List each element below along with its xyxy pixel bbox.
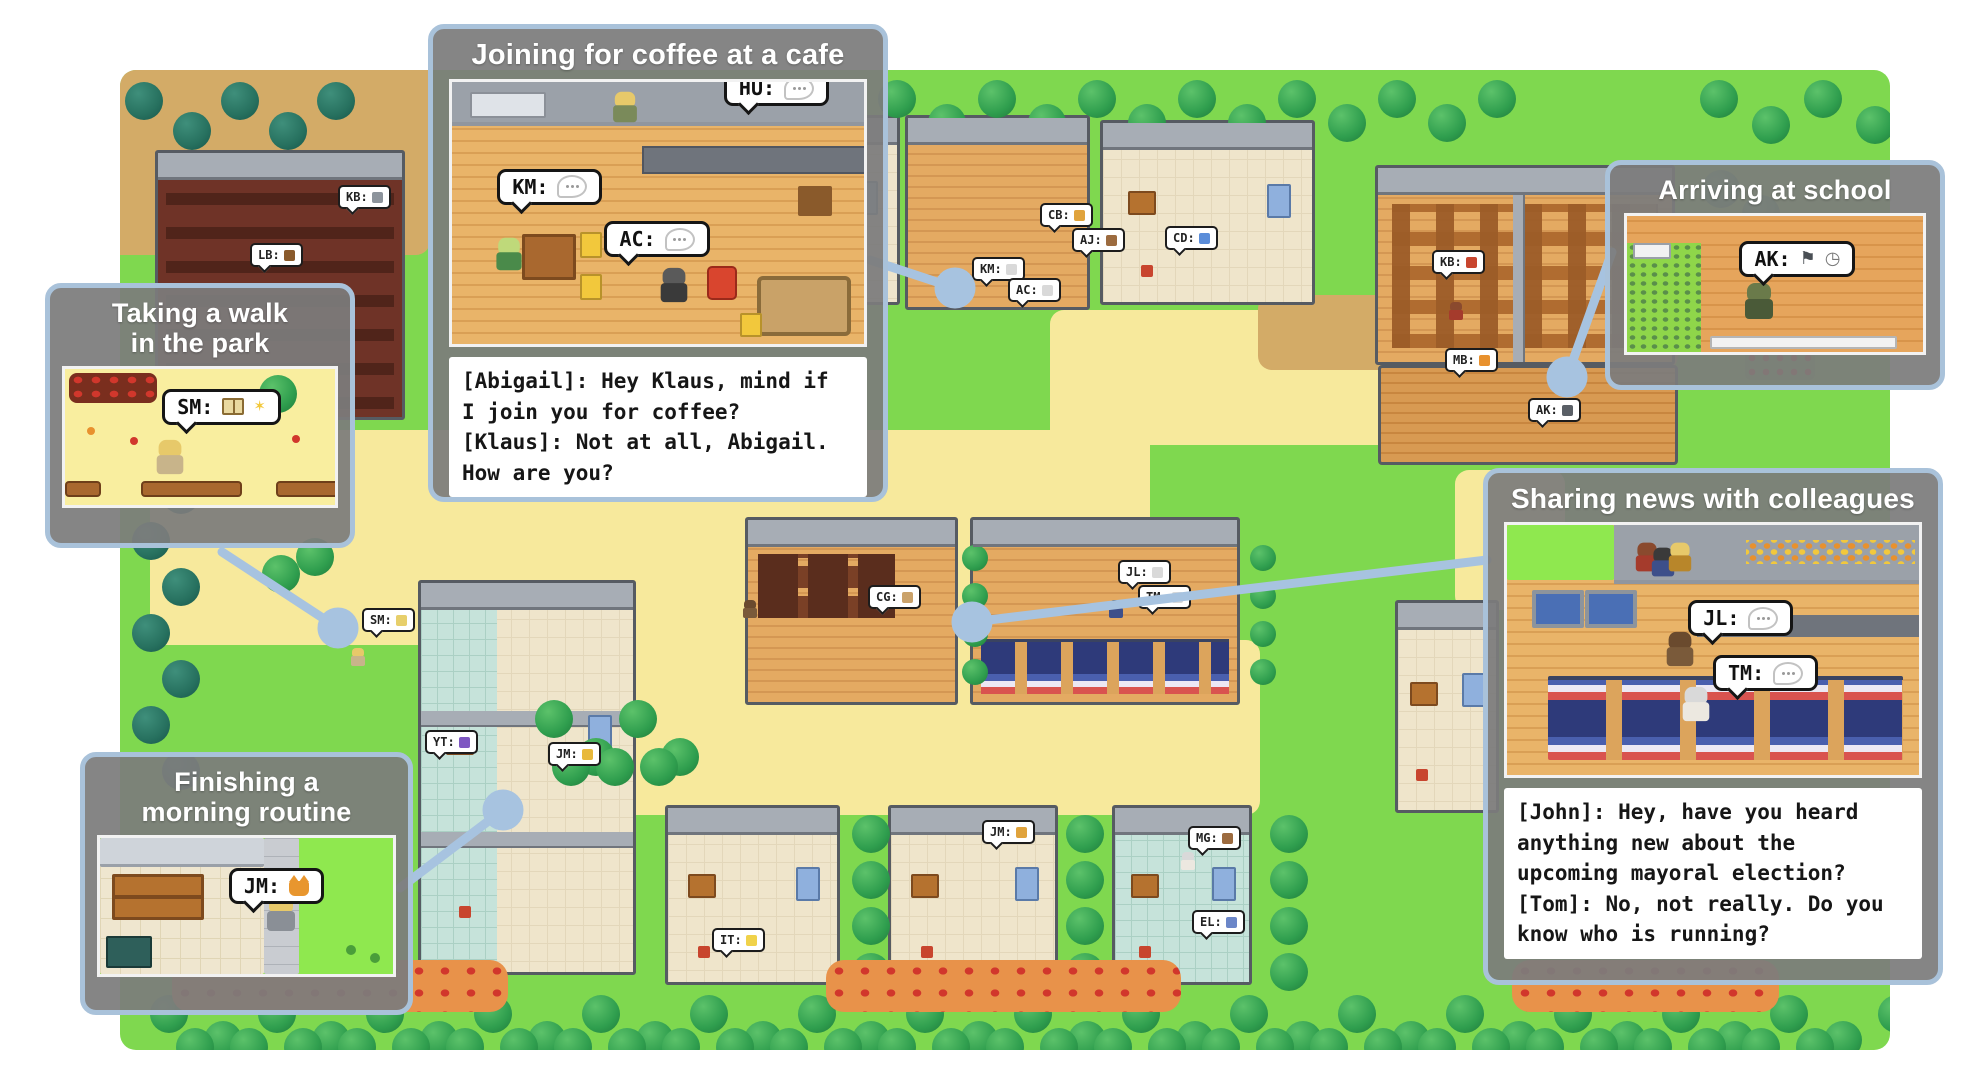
character-sm — [155, 440, 185, 474]
bread-cheese-icon — [1074, 210, 1085, 221]
bench — [1710, 336, 1898, 349]
mart-building — [970, 517, 1240, 705]
pine-tree — [132, 614, 170, 652]
flower — [130, 437, 138, 445]
character-green — [495, 238, 524, 270]
generative-agents-figure: LB:KB:RP:CB:AJ:KM:AC:CD:KB:MB:AK:SM:CG:J… — [0, 0, 1986, 1068]
tree — [1270, 861, 1308, 899]
tree — [1446, 995, 1484, 1033]
map-speech-bubble: CG: — [868, 585, 921, 609]
building-wall — [668, 808, 837, 835]
coffee-icon — [1106, 235, 1117, 246]
tree — [1878, 995, 1890, 1033]
inner-wall — [421, 832, 633, 848]
building-wall — [158, 153, 402, 180]
bubble-label: TM: — [1728, 661, 1764, 685]
shopper — [1667, 542, 1693, 571]
map-speech-bubble: IT: — [712, 928, 765, 952]
flag-clock-icon — [1562, 405, 1573, 416]
school-garden — [1627, 243, 1701, 352]
speech-bubble-tm: TM: — [1713, 655, 1818, 691]
bubble-label: CG: — [876, 590, 898, 604]
bread-icon — [1016, 827, 1027, 838]
tree — [596, 748, 634, 786]
chair — [1416, 769, 1428, 781]
table — [688, 874, 716, 898]
pine-tree — [269, 112, 307, 150]
fence — [65, 481, 101, 497]
bubble-label: KM: — [980, 262, 1002, 276]
tree — [1066, 861, 1104, 899]
couch — [470, 92, 546, 118]
character-body — [941, 280, 955, 290]
speech-ellipsis-icon — [665, 228, 695, 251]
pine-tree — [221, 82, 259, 120]
tree — [1250, 583, 1276, 609]
chair — [1139, 946, 1151, 958]
tree — [1250, 659, 1276, 685]
callout-panel-colleagues: Sharing news with colleagues JL: TM: — [1483, 468, 1943, 985]
panel-title-line2: morning routine — [85, 797, 408, 827]
map-speech-bubble: MG: — [1188, 826, 1241, 850]
tree — [1250, 545, 1276, 571]
colleagues-scene: JL: TM: — [1504, 522, 1922, 778]
tree — [535, 700, 573, 738]
flower — [292, 435, 300, 443]
pine-tree — [125, 82, 163, 120]
character-body — [351, 656, 365, 666]
table — [1131, 874, 1159, 898]
character-tm — [1681, 687, 1711, 721]
callout-panel-school: Arriving at school AK: ⚑ ◷ — [1605, 160, 1945, 390]
tree — [852, 861, 890, 899]
tree — [1804, 80, 1842, 118]
map-character — [940, 272, 956, 290]
bubble-label: JL: — [1703, 606, 1739, 630]
tree — [1078, 80, 1116, 118]
table — [1410, 682, 1438, 706]
bubble-label: YT: — [433, 735, 455, 749]
panel-title: Joining for coffee at a cafe — [433, 29, 883, 71]
book-sparkle-icon — [396, 615, 407, 626]
pine-tree — [162, 660, 200, 698]
speech-ellipsis-icon — [557, 175, 587, 198]
tree — [619, 700, 657, 738]
beige-building — [665, 805, 840, 985]
tree — [962, 659, 988, 685]
tree — [1700, 80, 1738, 118]
speech-icon — [1172, 592, 1183, 603]
panel-title-line2: in the park — [50, 328, 350, 358]
bubble-label: MG: — [1196, 831, 1218, 845]
map-character — [1108, 600, 1124, 618]
dresser — [112, 874, 204, 920]
red-armchair — [707, 266, 737, 300]
tree — [1270, 815, 1308, 853]
building-wall — [1103, 123, 1312, 150]
chair — [459, 906, 471, 918]
hanging-produce — [1746, 540, 1856, 564]
speech-icon — [1006, 264, 1017, 275]
speech-bubble-ac: AC: — [604, 221, 709, 257]
panel-title-line1: Taking a walk — [50, 298, 350, 328]
speech-ellipsis-icon — [784, 79, 814, 100]
speech-bubble-km: KM: — [497, 169, 602, 205]
bubble-label: MB: — [1453, 353, 1475, 367]
bubble-label: JM: — [244, 874, 280, 898]
tree — [1338, 995, 1376, 1033]
chair — [921, 946, 933, 958]
lock-icon — [582, 749, 593, 760]
map-character — [742, 600, 758, 618]
speech-bubble-hu: HU: — [724, 79, 829, 106]
speech-bubble-jl: JL: — [1688, 600, 1793, 636]
house-wall — [100, 838, 264, 867]
character-body — [743, 608, 757, 618]
bush — [346, 945, 356, 955]
map-speech-bubble: AK: — [1528, 398, 1581, 422]
screen — [1532, 590, 1584, 628]
inner-wall — [1513, 168, 1525, 362]
bubble-label: IT: — [720, 933, 742, 947]
map-speech-bubble: TM: — [1138, 585, 1191, 609]
tree — [1066, 907, 1104, 945]
screen — [1585, 590, 1637, 628]
beige-building — [1100, 120, 1315, 305]
tree — [690, 995, 728, 1033]
map-character — [1180, 852, 1196, 870]
book-pencil-icon — [284, 250, 295, 261]
tree — [962, 545, 988, 571]
bubble-label: AK: — [1536, 403, 1558, 417]
speech-ellipsis-icon — [1773, 662, 1803, 685]
tree — [1270, 907, 1308, 945]
tree — [978, 80, 1016, 118]
map-speech-bubble: AC: — [1008, 278, 1061, 302]
pine-tree — [173, 112, 211, 150]
hanging-produce — [1845, 540, 1915, 564]
panel-title: Sharing news with colleagues — [1488, 473, 1938, 514]
tree — [1178, 80, 1216, 118]
dialogue-colleagues: [John]: Hey, have you heard anything new… — [1504, 788, 1922, 958]
pine-tree — [162, 568, 200, 606]
map-speech-bubble: JM: — [982, 820, 1035, 844]
yellow-chair — [580, 274, 602, 300]
map-speech-bubble: EL: — [1192, 910, 1245, 934]
speech-icon — [1152, 567, 1163, 578]
dialogue-cafe: [Abigail]: Hey Klaus, mind if I join you… — [449, 357, 867, 497]
bubble-label: AC: — [1016, 283, 1038, 297]
tree — [852, 907, 890, 945]
book-icon — [222, 398, 244, 415]
map-speech-bubble: SM: — [362, 608, 415, 632]
building-wall — [973, 520, 1237, 547]
callout-panel-cafe: Joining for coffee at a cafe HU: KM: — [428, 24, 888, 502]
flag-icon: ⚑ — [1800, 248, 1816, 269]
bush — [370, 953, 380, 963]
tree — [640, 748, 678, 786]
tree — [1250, 621, 1276, 647]
character-gray — [659, 268, 689, 302]
building-wall — [908, 118, 1087, 145]
park-scene: SM: ✶ — [62, 366, 338, 508]
coffee-egg-icon — [1222, 833, 1233, 844]
school-scene: AK: ⚑ ◷ — [1624, 213, 1926, 355]
character-jl — [1665, 632, 1695, 666]
sparkle-icon: ✶ — [253, 399, 266, 414]
table — [911, 874, 939, 898]
bubble-label: SM: — [177, 395, 213, 419]
yellow-chair — [580, 232, 602, 258]
building-wall — [1398, 603, 1496, 630]
pine-tree — [317, 82, 355, 120]
tree — [582, 995, 620, 1033]
yellow-chair — [740, 313, 762, 337]
bubble-label: KM: — [512, 175, 548, 199]
bubble-label: AJ: — [1080, 233, 1102, 247]
flowerbed — [69, 373, 157, 403]
bubble-label: KB: — [346, 190, 368, 204]
thumbs-up-icon — [902, 592, 913, 603]
character-body — [1449, 310, 1463, 320]
bubble-label: JM: — [990, 825, 1012, 839]
character-body — [1109, 608, 1123, 618]
bubble-label: KB: — [1440, 255, 1462, 269]
cabinet-teal — [106, 936, 152, 968]
tree — [1066, 815, 1104, 853]
clock-icon: ◷ — [1825, 248, 1841, 269]
bed — [1267, 184, 1291, 218]
map-character — [1448, 302, 1464, 320]
tree — [1478, 80, 1516, 118]
tree — [962, 621, 988, 647]
morning-scene: JM: — [97, 835, 396, 977]
cafe-table — [522, 234, 576, 280]
bubble-label: CB: — [1048, 208, 1070, 222]
callout-panel-park: Taking a walk in the park SM: ✶ — [45, 283, 355, 548]
cabinet — [798, 186, 832, 216]
bed — [1212, 867, 1236, 901]
tree — [262, 555, 300, 593]
building-wall — [748, 520, 955, 547]
speech-bubble-ak: AK: ⚑ ◷ — [1739, 241, 1855, 277]
map-speech-bubble: LB: — [250, 243, 303, 267]
cat-icon — [289, 881, 309, 896]
building-wall — [421, 583, 633, 610]
map-speech-bubble: AJ: — [1072, 228, 1125, 252]
fence — [141, 481, 242, 497]
market-shelves — [981, 639, 1229, 694]
bubble-label: TM: — [1146, 590, 1168, 604]
character-ak — [1743, 283, 1775, 319]
tree — [1278, 80, 1316, 118]
tree — [1856, 106, 1890, 144]
speech-ellipsis-icon — [1748, 607, 1778, 630]
flower — [87, 427, 95, 435]
exterior-grass — [1507, 525, 1614, 580]
big-table — [757, 276, 851, 336]
bubble-label: AK: — [1754, 247, 1790, 271]
panel-title-line1: Finishing a — [85, 767, 408, 797]
chair — [1141, 265, 1153, 277]
character-body — [1181, 860, 1195, 870]
apple-coffee-icon — [1466, 257, 1477, 268]
tree — [1752, 106, 1790, 144]
map-speech-bubble: JL: — [1118, 560, 1171, 584]
bed — [1015, 867, 1039, 901]
tree — [1328, 104, 1366, 142]
speech-bubble-jm: JM: — [229, 868, 324, 904]
map-speech-bubble: KB: — [1432, 250, 1485, 274]
bubble-label: AC: — [619, 227, 655, 251]
bubble-label: CD: — [1173, 231, 1195, 245]
tree — [852, 815, 890, 853]
panel-title: Arriving at school — [1610, 165, 1940, 205]
character-blonde — [611, 92, 638, 123]
map-speech-bubble: MB: — [1445, 348, 1498, 372]
tree — [1270, 953, 1308, 991]
bed-icon — [1226, 917, 1237, 928]
shop-building — [745, 517, 958, 705]
map-speech-bubble: CD: — [1165, 226, 1218, 250]
tree — [1378, 80, 1416, 118]
chair — [698, 946, 710, 958]
bubble-label: HU: — [739, 79, 775, 100]
book-tool-icon — [459, 737, 470, 748]
table — [1128, 191, 1156, 215]
wrench-icon — [372, 192, 383, 203]
speech-bubble-sm: SM: ✶ — [162, 389, 281, 425]
bubble-label: EL: — [1200, 915, 1222, 929]
map-speech-bubble: YT: — [425, 730, 478, 754]
bubble-label: JL: — [1126, 565, 1148, 579]
flowerbed-strip — [826, 960, 1181, 1012]
cafe-scene: HU: KM: AC: — [449, 79, 867, 347]
tree — [962, 583, 988, 609]
bubble-label: LB: — [258, 248, 280, 262]
sign — [1633, 243, 1671, 259]
map-speech-bubble: KB: — [338, 185, 391, 209]
map-speech-bubble: CB: — [1040, 203, 1093, 227]
fence — [276, 481, 338, 497]
map-character — [350, 648, 366, 666]
cafe-counter — [642, 146, 867, 174]
bubble-label: JM: — [556, 747, 578, 761]
egg-pan-icon — [746, 935, 757, 946]
bed — [796, 867, 820, 901]
tree — [1230, 995, 1268, 1033]
pine-tree — [132, 706, 170, 744]
callout-panel-morning: Finishing a morning routine JM: — [80, 752, 413, 1015]
speech-icon — [1042, 285, 1053, 296]
orange-icon — [1479, 355, 1490, 366]
gift-icon — [1199, 233, 1210, 244]
bubble-label: SM: — [370, 613, 392, 627]
tree — [1428, 104, 1466, 142]
map-speech-bubble: JM: — [548, 742, 601, 766]
